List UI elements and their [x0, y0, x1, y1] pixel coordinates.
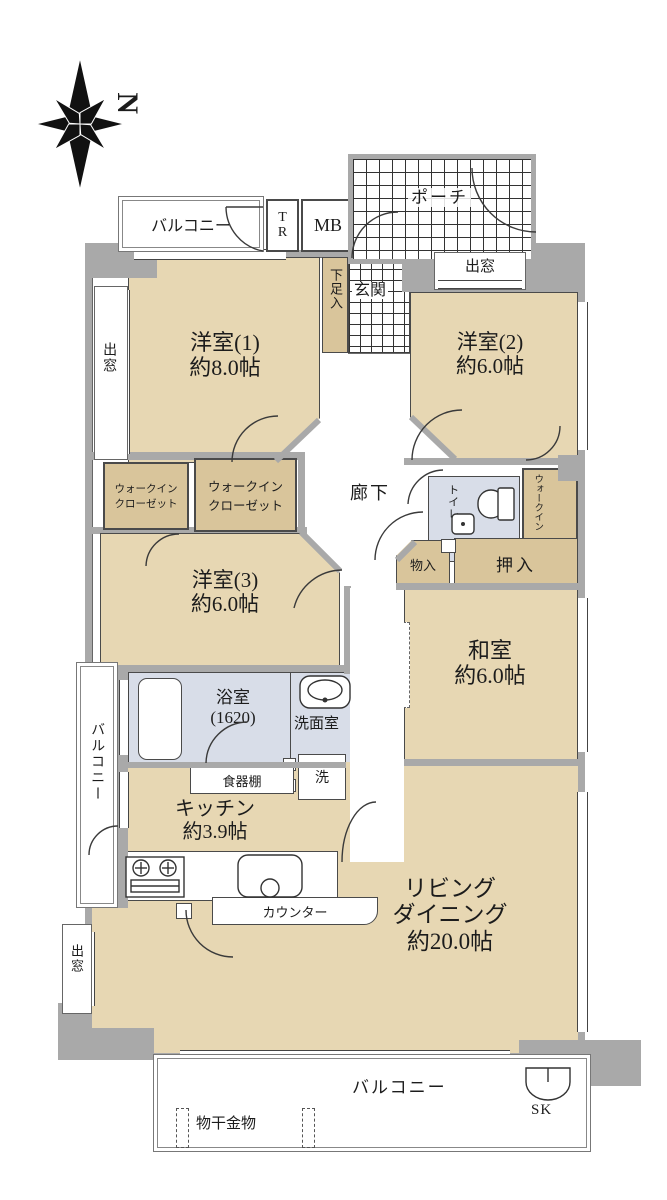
window	[577, 302, 588, 450]
window	[119, 680, 129, 755]
kitchen-counter	[118, 851, 338, 901]
compass-rose	[29, 58, 131, 190]
compass-north-label: N	[110, 92, 145, 114]
hallway-label: 廊下	[350, 483, 390, 504]
room-japanese-label: 和室 約6.0帖	[415, 638, 565, 689]
wall	[396, 583, 578, 590]
walk-in-closet-2: ウォークイン クローゼット	[194, 458, 297, 532]
window	[119, 772, 129, 828]
wall	[404, 759, 585, 766]
pillar	[558, 455, 585, 481]
walk-in-closet-1: ウォークイン クローゼット	[103, 462, 189, 530]
room-western1-label: 洋室(1) 約8.0帖	[150, 330, 300, 381]
balcony-left-label: バルコニー	[88, 722, 104, 802]
laundry-hanger-label: 物干金物	[196, 1116, 256, 1133]
hall-passage	[350, 588, 404, 862]
slop-sink-label: SK	[531, 1102, 552, 1119]
laundry-hanger-post	[176, 1108, 189, 1148]
washroom-label: 洗面室	[294, 716, 339, 733]
bay-window-left-lower-label: 出窓	[68, 944, 83, 974]
wall	[118, 762, 346, 768]
laundry-box: 洗	[298, 754, 346, 800]
balcony-bottom-label: バルコニー	[352, 1078, 447, 1098]
window	[577, 792, 588, 1032]
pillar	[58, 1028, 154, 1060]
laundry-hanger-post	[302, 1108, 315, 1148]
cupboard: 食器棚	[190, 766, 294, 794]
floor-plan: 洋室(1) 約8.0帖 下足入 玄関 洋室(2) 約6.0帖 ウォークイン クロ…	[0, 0, 667, 1200]
balcony-bottom	[153, 1054, 591, 1152]
small-box	[441, 539, 456, 553]
wall	[298, 452, 305, 532]
room-western3-label: 洋室(3) 約6.0帖	[150, 568, 300, 616]
porch	[348, 154, 536, 264]
kitchen-label: キッチン 約3.9帖	[145, 798, 285, 844]
bathtub	[138, 678, 182, 760]
bay-window-left-upper-label: 出窓	[100, 342, 116, 374]
toilet-label: トイレ	[446, 484, 459, 520]
window	[438, 280, 522, 289]
living-label: リビング ダイニング 約20.0帖	[375, 876, 525, 955]
trunk-room: TR	[266, 199, 299, 252]
genkan-label: 玄関	[352, 282, 388, 300]
counter-strip: カウンター	[212, 897, 378, 925]
porch-label: ポーチ	[408, 188, 471, 208]
room-western2-label: 洋室(2) 約6.0帖	[415, 330, 565, 378]
meter-box: MB	[301, 199, 355, 252]
genkan	[348, 257, 410, 353]
storage-oshiire: 押入	[454, 538, 578, 588]
shoe-box-label: 下足入	[327, 268, 342, 310]
bathroom-label: 浴室 (1620)	[178, 688, 288, 727]
small-box	[176, 903, 192, 919]
balcony-top: バルコニー	[118, 196, 264, 252]
window	[577, 598, 588, 752]
